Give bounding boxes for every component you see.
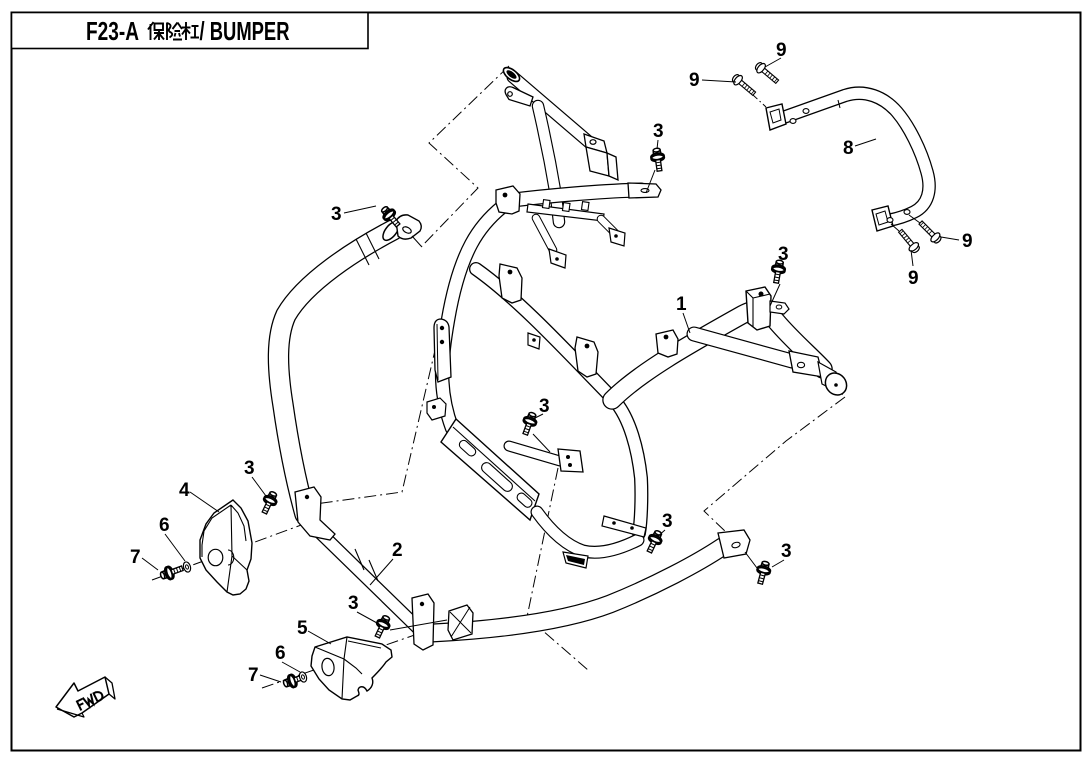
svg-text:9: 9: [776, 40, 787, 61]
svg-text:3: 3: [662, 511, 673, 532]
svg-text:9: 9: [908, 268, 919, 289]
svg-text:6: 6: [159, 515, 170, 536]
svg-text:6: 6: [275, 643, 286, 664]
svg-text:3: 3: [778, 244, 789, 265]
svg-text:7: 7: [130, 547, 141, 568]
svg-text:3: 3: [331, 204, 342, 225]
svg-text:2: 2: [392, 540, 403, 561]
svg-text:1: 1: [676, 294, 687, 315]
svg-text:9: 9: [962, 231, 973, 252]
svg-text:4: 4: [179, 480, 190, 501]
svg-text:7: 7: [248, 665, 259, 686]
svg-text:8: 8: [843, 138, 854, 159]
svg-text:F23-A: F23-A: [86, 16, 139, 46]
svg-text:3: 3: [348, 593, 359, 614]
svg-text:9: 9: [689, 70, 700, 91]
svg-text:/ BUMPER: / BUMPER: [200, 16, 290, 46]
svg-text:3: 3: [781, 541, 792, 562]
svg-text:3: 3: [244, 458, 255, 479]
svg-text:3: 3: [539, 396, 550, 417]
svg-text:3: 3: [653, 121, 664, 142]
svg-text:5: 5: [297, 618, 308, 639]
